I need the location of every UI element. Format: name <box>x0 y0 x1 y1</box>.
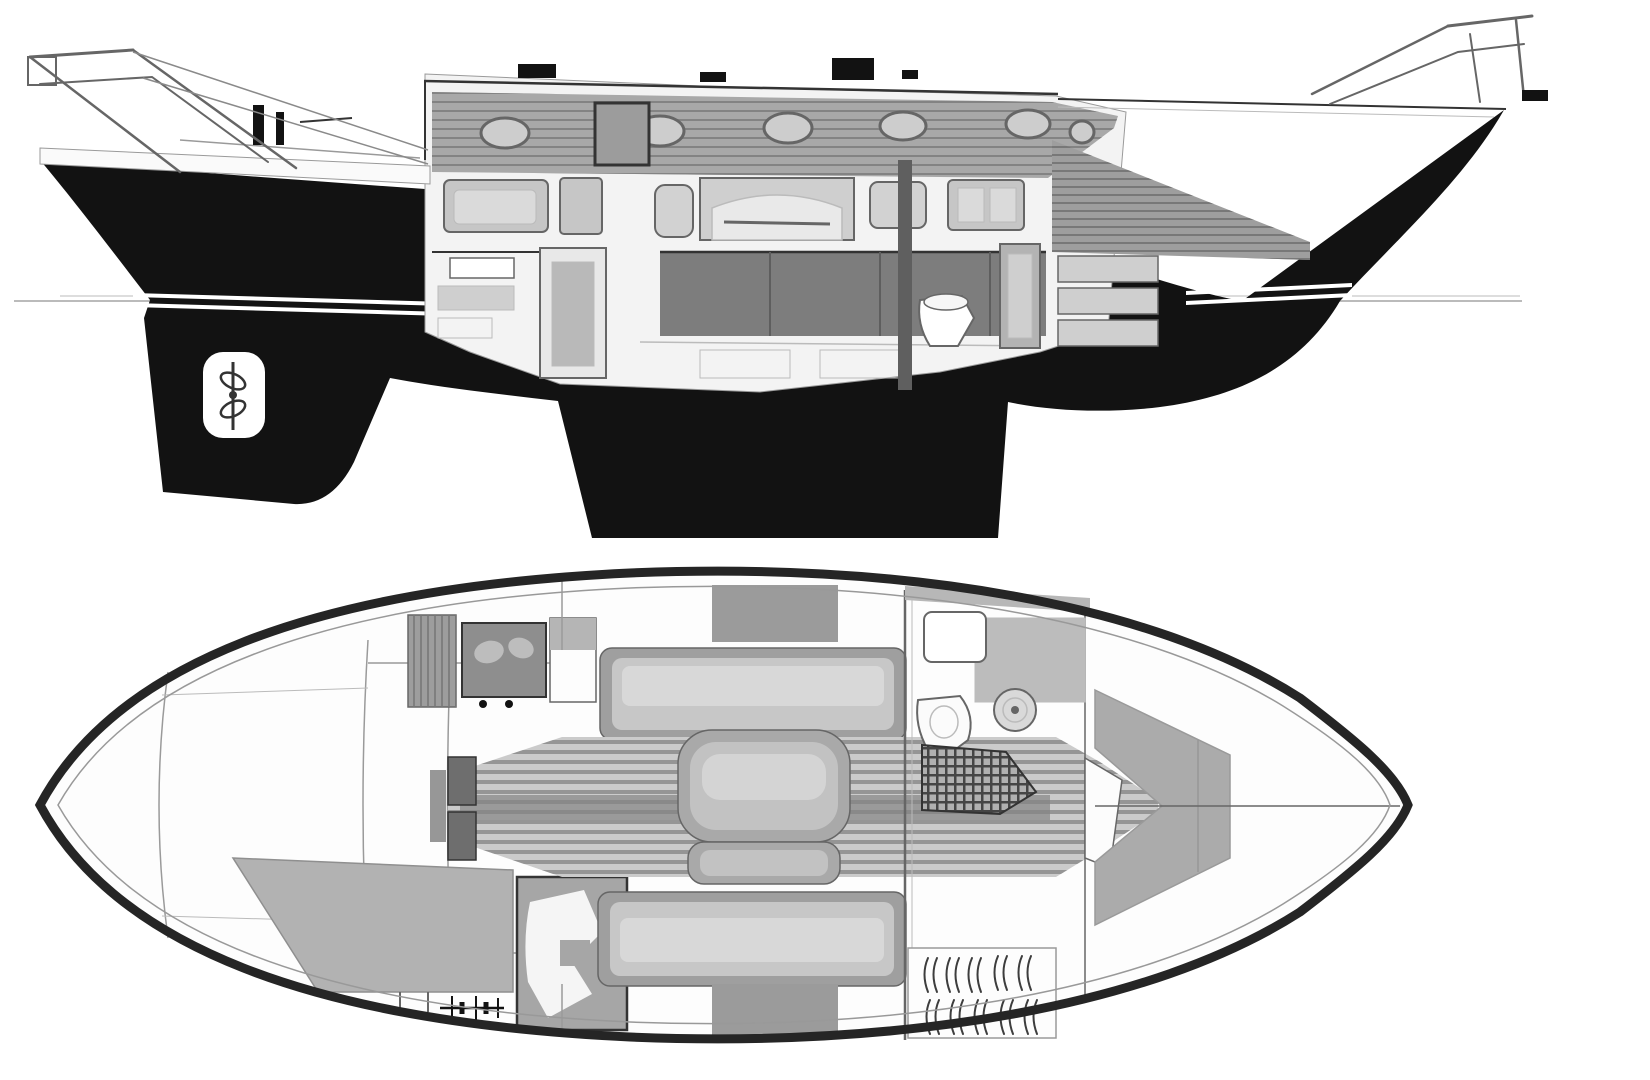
drawing-canvas <box>0 0 1650 1080</box>
stove-knob <box>505 700 513 708</box>
companionway-door <box>540 248 606 378</box>
saloon-table <box>678 730 850 884</box>
foredeck-line <box>1058 99 1506 109</box>
boat-line-drawing <box>0 0 1650 1080</box>
breaker-panel <box>408 615 456 707</box>
sidedeck-locker-bottom <box>712 984 838 1038</box>
profile-view <box>14 16 1548 538</box>
galley-column <box>550 618 596 702</box>
port-settee <box>598 892 906 986</box>
stove-knob <box>479 700 487 708</box>
toilet <box>917 696 971 752</box>
anchor-fitting <box>1522 90 1548 101</box>
bow-wood-panel <box>1052 140 1310 260</box>
starboard-settee <box>600 648 906 740</box>
porthole-icon <box>481 118 529 148</box>
head-vanity <box>975 618 1085 702</box>
arched-alcove <box>700 178 854 240</box>
deck-hatch <box>924 612 986 662</box>
porthole-icon <box>764 113 812 143</box>
porthole-icon <box>1006 110 1050 138</box>
sidedeck-locker-top <box>712 585 838 642</box>
porthole-icon <box>1070 121 1094 143</box>
forward-drawers <box>1058 256 1158 346</box>
propeller-aperture <box>203 352 265 438</box>
bow-pulpit <box>1312 16 1548 104</box>
cockpit-pedestal <box>253 105 352 145</box>
porthole-icon <box>880 112 926 140</box>
plan-view <box>40 571 1408 1040</box>
mast-post <box>898 160 912 390</box>
sink <box>994 689 1036 731</box>
head-door <box>1000 244 1040 348</box>
stove <box>462 623 546 708</box>
coachroof-hatches <box>518 58 918 82</box>
hatchboard-mirror <box>595 103 649 165</box>
